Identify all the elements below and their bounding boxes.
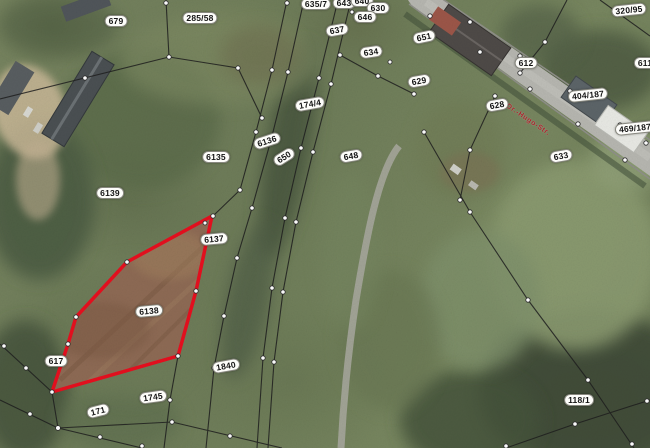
map-viewport[interactable]: Dr.-Hugo-Str. 679285/58635/7643640637630… — [0, 0, 650, 448]
photo-grain-overlay — [0, 0, 650, 448]
aerial-cadastral-canvas — [0, 0, 650, 448]
